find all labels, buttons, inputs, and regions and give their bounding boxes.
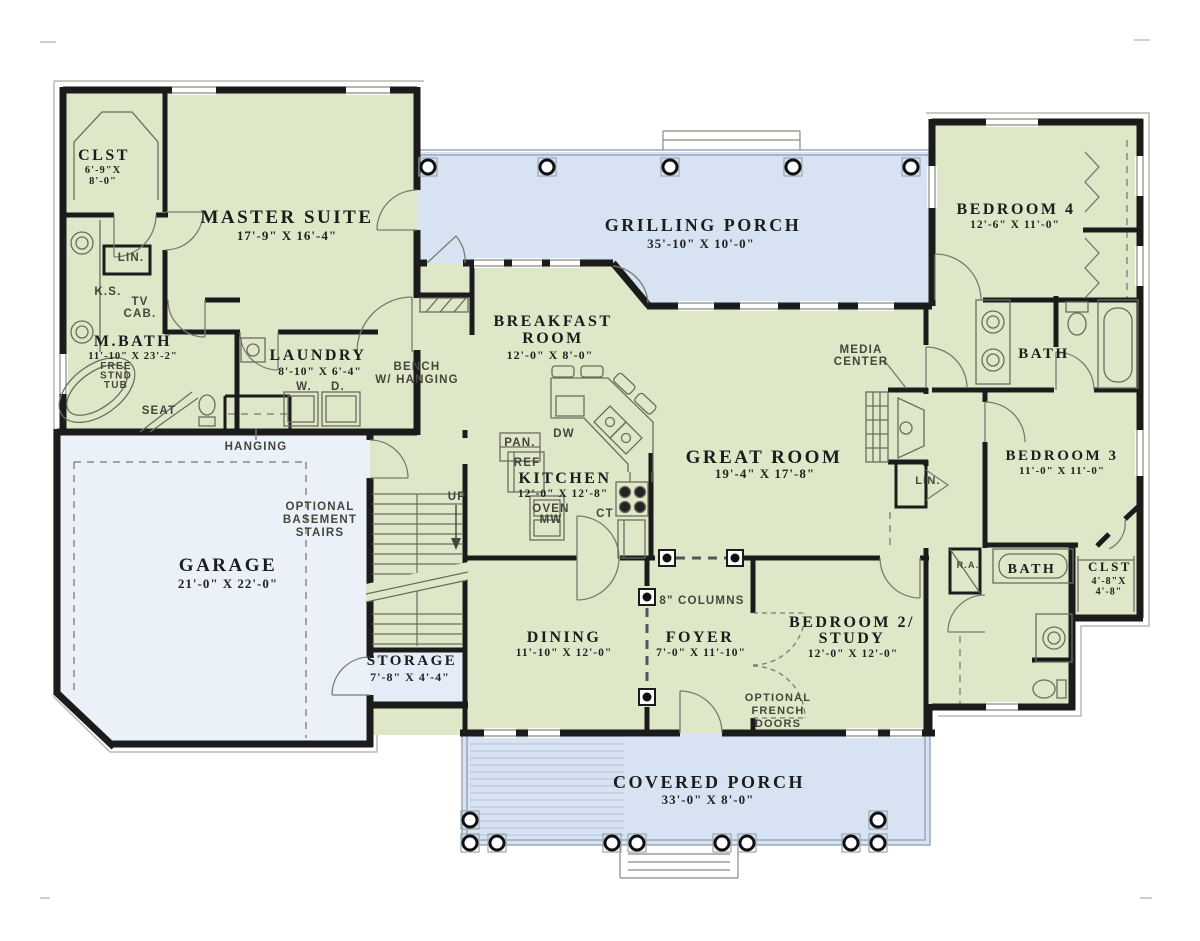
grilling-steps [663,131,800,150]
label-optional-basement-shape: STAIRS [296,527,345,539]
label-media-center: MEDIACENTER [834,344,888,368]
label-breakfast-name-shape: ROOM [522,330,584,347]
porch-column [490,836,504,850]
label-covered-porch-name: COVERED PORCH [613,772,805,792]
porch-column [844,836,858,850]
square-column-shape [731,554,740,563]
label-columns-8: 8" COLUMNS [659,595,744,607]
label-bedroom4-dim-shape: 12'-6" X 11'-0" [970,219,1060,231]
label-ref: REF [514,457,541,469]
label-kitchen-dim: 12'-0" X 12'-8" [518,488,608,500]
label-laundry-dim-shape: 8'-10" X 6'-4" [278,366,362,378]
label-clst-right-name-shape: CLST [1088,559,1132,574]
label-bedroom2-dim-shape: 12'-0" X 12'-0" [808,648,898,660]
porch-column [715,836,729,850]
square-column-shape [663,554,672,563]
label-tv-cab-shape: TV [131,296,148,308]
label-bedroom2-name-shape: STUDY [819,630,886,647]
fixtures-shape [635,487,646,498]
label-great-room-name: GREAT ROOM [686,447,843,468]
label-clst-right-dim-shape: 4'-8"X [1092,576,1127,587]
label-breakfast-name-shape: BREAKFAST [493,313,612,330]
label-dining-dim-shape: 11'-10" X 12'-0" [516,647,613,659]
porch-column [740,836,754,850]
label-media-center-shape: MEDIA [839,344,882,356]
label-seat-shape: SEAT [142,405,177,417]
porch-column [540,160,554,174]
label-dining-name-shape: DINING [527,629,602,646]
porch-column [904,160,918,174]
label-bedroom4-name: BEDROOM 4 [957,201,1076,218]
porch-column [421,160,435,174]
label-bedroom4-name-shape: BEDROOM 4 [957,201,1076,218]
porch-column [786,160,800,174]
floor-plan-drawing: CLST6'-9"X8'-0"MASTER SUITE17'-9" X 16'-… [0,0,1200,941]
label-garage-dim-shape: 21'-0" X 22'-0" [178,576,278,591]
fixtures-shape [620,502,631,513]
label-bedroom3-name: BEDROOM 3 [1006,448,1119,464]
label-storage-dim-shape: 7'-8" X 4'-4" [370,670,450,684]
label-bedroom3-dim-shape: 11'-0" X 11'-0" [1019,465,1105,477]
center-block-fill [418,263,932,733]
label-washer-shape: W. [296,381,312,393]
square-column [639,689,655,705]
label-ct: CT [596,508,614,520]
label-optional-french-shape: OPTIONAL [745,692,811,704]
label-oven-mw-shape: MW [540,514,563,526]
label-laundry-dim: 8'-10" X 6'-4" [278,366,362,378]
label-great-room-name-shape: GREAT ROOM [686,447,843,468]
label-lin-left-shape: LIN. [118,252,145,264]
square-column [727,550,743,566]
floor-plan-page: CLST6'-9"X8'-0"MASTER SUITE17'-9" X 16'-… [0,0,1200,941]
porch-column [605,836,619,850]
label-clst-right-name: CLST [1088,559,1132,574]
label-garage-name-shape: GARAGE [179,555,277,576]
label-clst-left-name-shape: CLST [78,147,130,164]
label-ra-shape: R.A. [957,560,980,570]
label-dw: DW [553,428,575,440]
label-breakfast-dim-shape: 12'-0" X 8'-0" [507,348,594,362]
label-bench-hanging-shape: W/ HANGING [375,374,459,386]
label-clst-left-dim-shape: 8'-0" [89,176,117,187]
label-clst-left-dim: 6'-9"X8'-0" [85,165,121,187]
label-master-suite-dim: 17'-9" X 16'-4" [237,228,337,243]
porch-column [871,836,885,850]
label-dryer-shape: D. [331,381,345,393]
label-great-room-dim-shape: 19'-4" X 17'-8" [715,466,815,481]
label-covered-porch-dim: 33'-0" X 8'-0" [662,792,755,807]
label-clst-right-dim-shape: 4'-8" [1096,587,1123,598]
label-master-suite-dim-shape: 17'-9" X 16'-4" [237,228,337,243]
label-optional-basement-shape: BASEMENT [283,514,357,526]
label-ks: K.S. [94,286,121,298]
label-covered-porch-name-shape: COVERED PORCH [613,772,805,792]
fixtures-shape [620,487,631,498]
label-foyer-name-shape: FOYER [666,629,735,646]
label-master-suite-name: MASTER SUITE [200,207,373,228]
label-lin-right-shape: LIN. [915,475,941,487]
label-dw-shape: DW [553,428,575,440]
label-media-center-shape: CENTER [834,356,888,368]
label-optional-french-shape: FRENCH [751,705,804,717]
label-clst-left-dim-shape: 6'-9"X [85,165,121,176]
label-clst-left-name: CLST [78,147,130,164]
label-garage-name: GARAGE [179,555,277,576]
label-pan-shape: PAN. [504,437,535,449]
label-bath-lower: BATH [1008,562,1057,577]
label-bench-hanging-shape: BENCH [394,361,441,373]
label-m-bath-name-shape: M.BATH [94,333,172,350]
label-kitchen-name-shape: KITCHEN [518,470,611,487]
square-column [639,589,655,605]
label-bedroom3-dim: 11'-0" X 11'-0" [1019,465,1105,477]
label-grilling-porch-name-shape: GRILLING PORCH [605,215,802,235]
label-dining-dim: 11'-10" X 12'-0" [516,647,613,659]
square-column [659,550,675,566]
label-laundry-name-shape: LAUNDRY [270,347,367,364]
label-great-room-dim: 19'-4" X 17'-8" [715,466,815,481]
porch-column [871,813,885,827]
label-hanging-left-shape: HANGING [225,441,288,453]
label-foyer-dim-shape: 7'-0" X 11'-10" [656,647,746,659]
label-storage-name-shape: STORAGE [367,653,458,669]
fixtures-shape [635,502,646,513]
label-clst-right-dim: 4'-8"X4'-8" [1092,576,1127,598]
label-ref-shape: REF [514,457,541,469]
label-kitchen-dim-shape: 12'-0" X 12'-8" [518,488,608,500]
label-ks-shape: K.S. [94,286,121,298]
label-columns-8-shape: 8" COLUMNS [659,595,744,607]
label-bedroom4-dim: 12'-6" X 11'-0" [970,219,1060,231]
label-optional-french-shape: DOORS [755,718,801,730]
label-optional-basement-shape: OPTIONAL [285,501,354,513]
label-bedroom3-name-shape: BEDROOM 3 [1006,448,1119,464]
label-bath-upper-shape: BATH [1018,346,1069,362]
label-hanging-left: HANGING [225,441,288,453]
label-master-suite-name-shape: MASTER SUITE [200,207,373,228]
label-tv-cab-shape: CAB. [124,308,157,320]
square-column-shape [643,593,652,602]
porch-column [663,160,677,174]
label-bedroom2-dim: 12'-0" X 12'-0" [808,648,898,660]
label-foyer-name: FOYER [666,629,735,646]
label-bedroom2-name-shape: BEDROOM 2/ [789,614,915,631]
square-column-shape [643,693,652,702]
label-bath-upper: BATH [1018,346,1069,362]
label-dryer: D. [331,381,345,393]
label-dining-name: DINING [527,629,602,646]
porch-column [630,836,644,850]
label-pan: PAN. [504,437,535,449]
label-free-stnd-tub: FREESTNDTUB [100,361,132,391]
label-covered-porch-dim-shape: 33'-0" X 8'-0" [662,792,755,807]
label-laundry-name: LAUNDRY [270,347,367,364]
label-up: UP [448,491,466,503]
label-garage-dim: 21'-0" X 22'-0" [178,576,278,591]
label-free-stnd-tub-shape: TUB [104,380,128,391]
label-lin-right: LIN. [915,475,941,487]
label-washer: W. [296,381,312,393]
label-ra: R.A. [957,560,980,570]
label-ct-shape: CT [596,508,614,520]
label-grilling-porch-dim-shape: 35'-10" X 10'-0" [647,236,755,251]
label-lin-left: LIN. [118,252,145,264]
label-kitchen-name: KITCHEN [518,470,611,487]
label-grilling-porch-dim: 35'-10" X 10'-0" [647,236,755,251]
label-up-shape: UP [448,491,466,503]
label-storage-name: STORAGE [367,653,458,669]
label-breakfast-dim: 12'-0" X 8'-0" [507,348,594,362]
porch-column [463,836,477,850]
label-storage-dim: 7'-8" X 4'-4" [370,670,450,684]
label-seat: SEAT [142,405,177,417]
label-foyer-dim: 7'-0" X 11'-10" [656,647,746,659]
label-grilling-porch-name: GRILLING PORCH [605,215,802,235]
label-bath-lower-shape: BATH [1008,562,1057,577]
porch-column [463,813,477,827]
label-m-bath-name: M.BATH [94,333,172,350]
